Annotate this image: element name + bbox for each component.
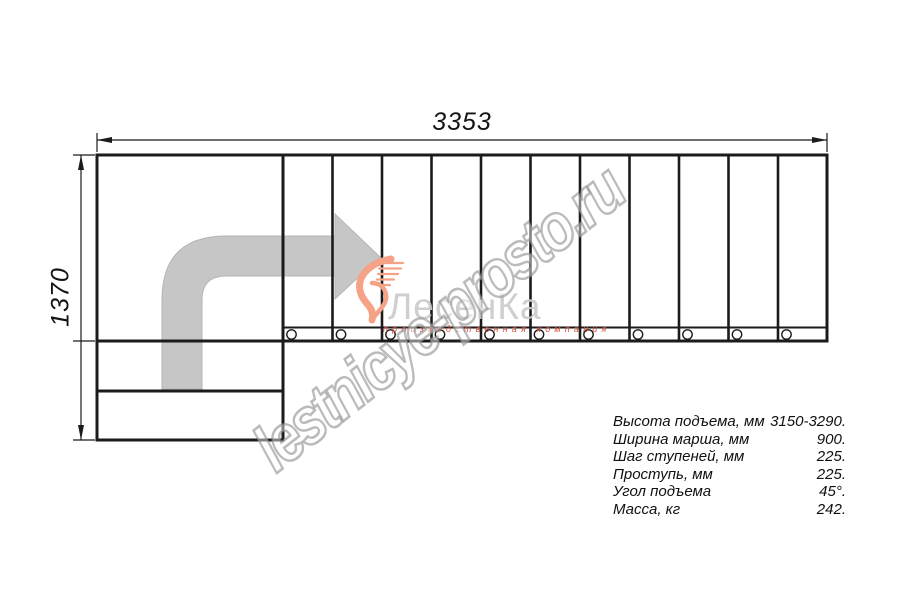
spec-value: 3150-3290. [770,413,846,431]
fastener-circle [287,330,296,339]
spec-row: Проступь, мм 225. [613,466,846,484]
arrowhead-left-icon [97,137,112,143]
spec-value: 225. [817,466,846,484]
spec-label: Проступь, мм [613,466,713,484]
spec-row: Ширина марша, мм 900. [613,431,846,449]
spec-label: Масса, кг [613,501,680,519]
left-dimension-label: 1370 [47,267,76,327]
spec-label: Ширина марша, мм [613,431,749,449]
spec-value: 242. [817,501,846,519]
arrowhead-right-icon [812,137,827,143]
fastener-circle [683,330,692,339]
fastener-circle [633,330,642,339]
arrowhead-down-icon [78,425,84,440]
spec-row: Угол подъема 45°. [613,483,846,501]
stair-drawing-page: 3353 1370 ЛесенКа производственная компа… [0,0,900,600]
spec-value: 900. [817,431,846,449]
spec-value: 45°. [819,483,846,501]
spec-label: Шаг ступеней, мм [613,448,744,466]
spec-value: 225. [817,448,846,466]
spec-row: Высота подъема, мм 3150-3290. [613,413,846,431]
spec-row: Масса, кг 242. [613,501,846,519]
fastener-circle [336,330,345,339]
spec-table: Высота подъема, мм 3150-3290. Ширина мар… [613,413,846,518]
arrowhead-up-icon [78,155,84,170]
fastener-circle [732,330,741,339]
spec-label: Угол подъема [613,483,711,501]
fastener-circle [782,330,791,339]
spec-label: Высота подъема, мм [613,413,765,431]
spec-row: Шаг ступеней, мм 225. [613,448,846,466]
left-dimension [73,155,95,440]
top-dimension-label: 3353 [432,108,492,137]
